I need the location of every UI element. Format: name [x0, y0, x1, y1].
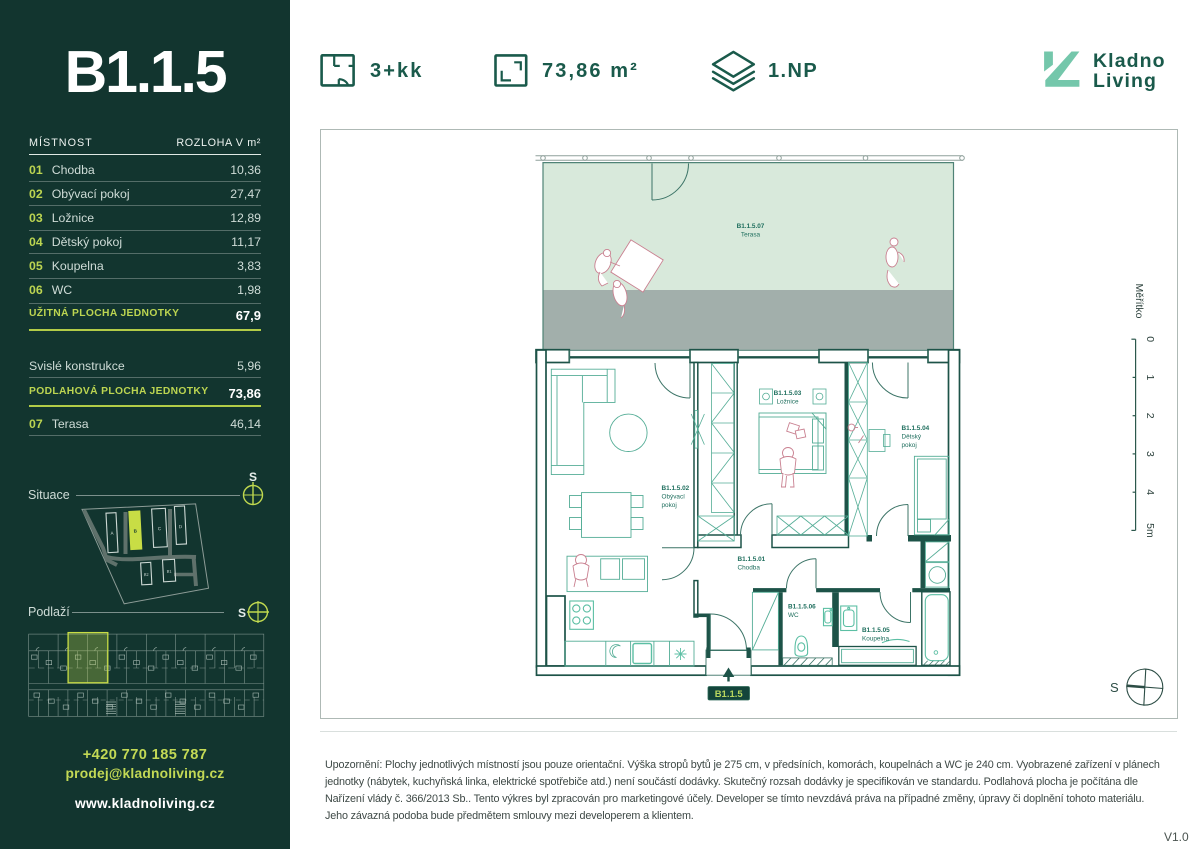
svg-text:A: A	[110, 531, 113, 536]
svg-text:5m: 5m	[1144, 523, 1156, 538]
svg-text:4: 4	[1144, 489, 1156, 495]
svg-text:B1.1.5: B1.1.5	[715, 689, 744, 700]
svg-text:WC: WC	[788, 612, 799, 619]
svg-text:S: S	[238, 606, 246, 620]
svg-text:B1.1.5.01: B1.1.5.01	[738, 556, 766, 563]
svg-text:Koupelna: Koupelna	[862, 636, 889, 643]
svg-text:pokoj: pokoj	[902, 442, 917, 449]
svg-text:Obývací: Obývací	[662, 494, 686, 501]
svg-text:D: D	[179, 524, 183, 529]
svg-text:B1.1.5.07: B1.1.5.07	[737, 223, 765, 230]
svg-text:3: 3	[1144, 451, 1156, 457]
svg-text:C: C	[158, 526, 162, 531]
svg-text:Chodba: Chodba	[738, 565, 761, 572]
svg-text:Terasa: Terasa	[741, 232, 761, 239]
svg-text:B2: B2	[144, 572, 150, 577]
svg-text:1: 1	[1144, 374, 1156, 380]
svg-text:B1.1.5.05: B1.1.5.05	[862, 627, 890, 634]
svg-text:B1.1.5.03: B1.1.5.03	[774, 390, 802, 397]
svg-text:Ložnice: Ložnice	[776, 399, 798, 406]
svg-text:pokoj: pokoj	[662, 502, 677, 509]
svg-text:B1.1.5.06: B1.1.5.06	[788, 604, 816, 611]
svg-text:B1.1.5.02: B1.1.5.02	[662, 485, 690, 492]
svg-text:2: 2	[1144, 413, 1156, 419]
svg-text:0: 0	[1144, 336, 1156, 342]
svg-text:Dětský: Dětský	[902, 434, 922, 441]
svg-text:S: S	[1110, 680, 1119, 695]
svg-text:Měřítko: Měřítko	[1133, 283, 1145, 318]
svg-text:B1: B1	[167, 569, 173, 574]
svg-text:B1.1.5.04: B1.1.5.04	[902, 425, 930, 432]
